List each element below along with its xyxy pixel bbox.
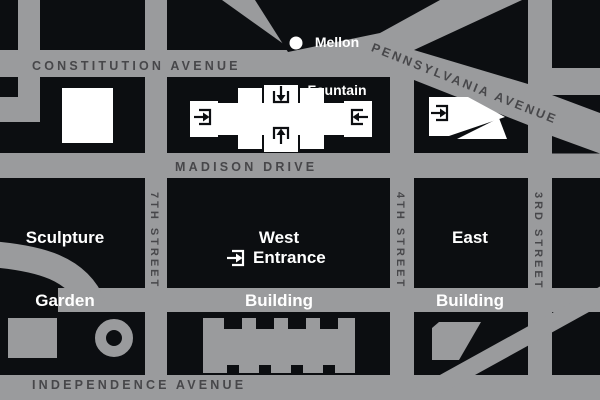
entrance-label: Entrance — [253, 248, 326, 268]
block-east-of-3rd — [552, 178, 600, 288]
fourth-street-label: 4TH STREET — [394, 192, 406, 289]
madison-drive-label: MADISON DRIVE — [175, 160, 317, 174]
east-building-label: East Building — [410, 185, 530, 353]
west-building-label: West Building — [209, 185, 349, 353]
independence-avenue-label: INDEPENDENCE AVENUE — [32, 378, 246, 392]
block-sliver-east-1 — [552, 95, 600, 113]
third-street-label: 3RD STREET — [532, 192, 544, 290]
sculpture-garden-label: Sculpture Garden — [5, 185, 125, 353]
block-sliver-east-2 — [552, 136, 600, 154]
block-top-far-right — [552, 0, 600, 68]
seventh-street-label: 7TH STREET — [148, 192, 160, 289]
building-square-north — [62, 88, 113, 143]
block-top-far-left — [0, 0, 18, 50]
constitution-avenue-label: CONSTITUTION AVENUE — [32, 59, 241, 73]
street-elbow-arm — [0, 97, 18, 122]
national-gallery-area-map: CONSTITUTION AVENUE PENNSYLVANIA AVENUE … — [0, 0, 600, 400]
mellon-fountain-label: Mellon Fountain — [282, 2, 392, 130]
block-top-left — [40, 0, 145, 50]
